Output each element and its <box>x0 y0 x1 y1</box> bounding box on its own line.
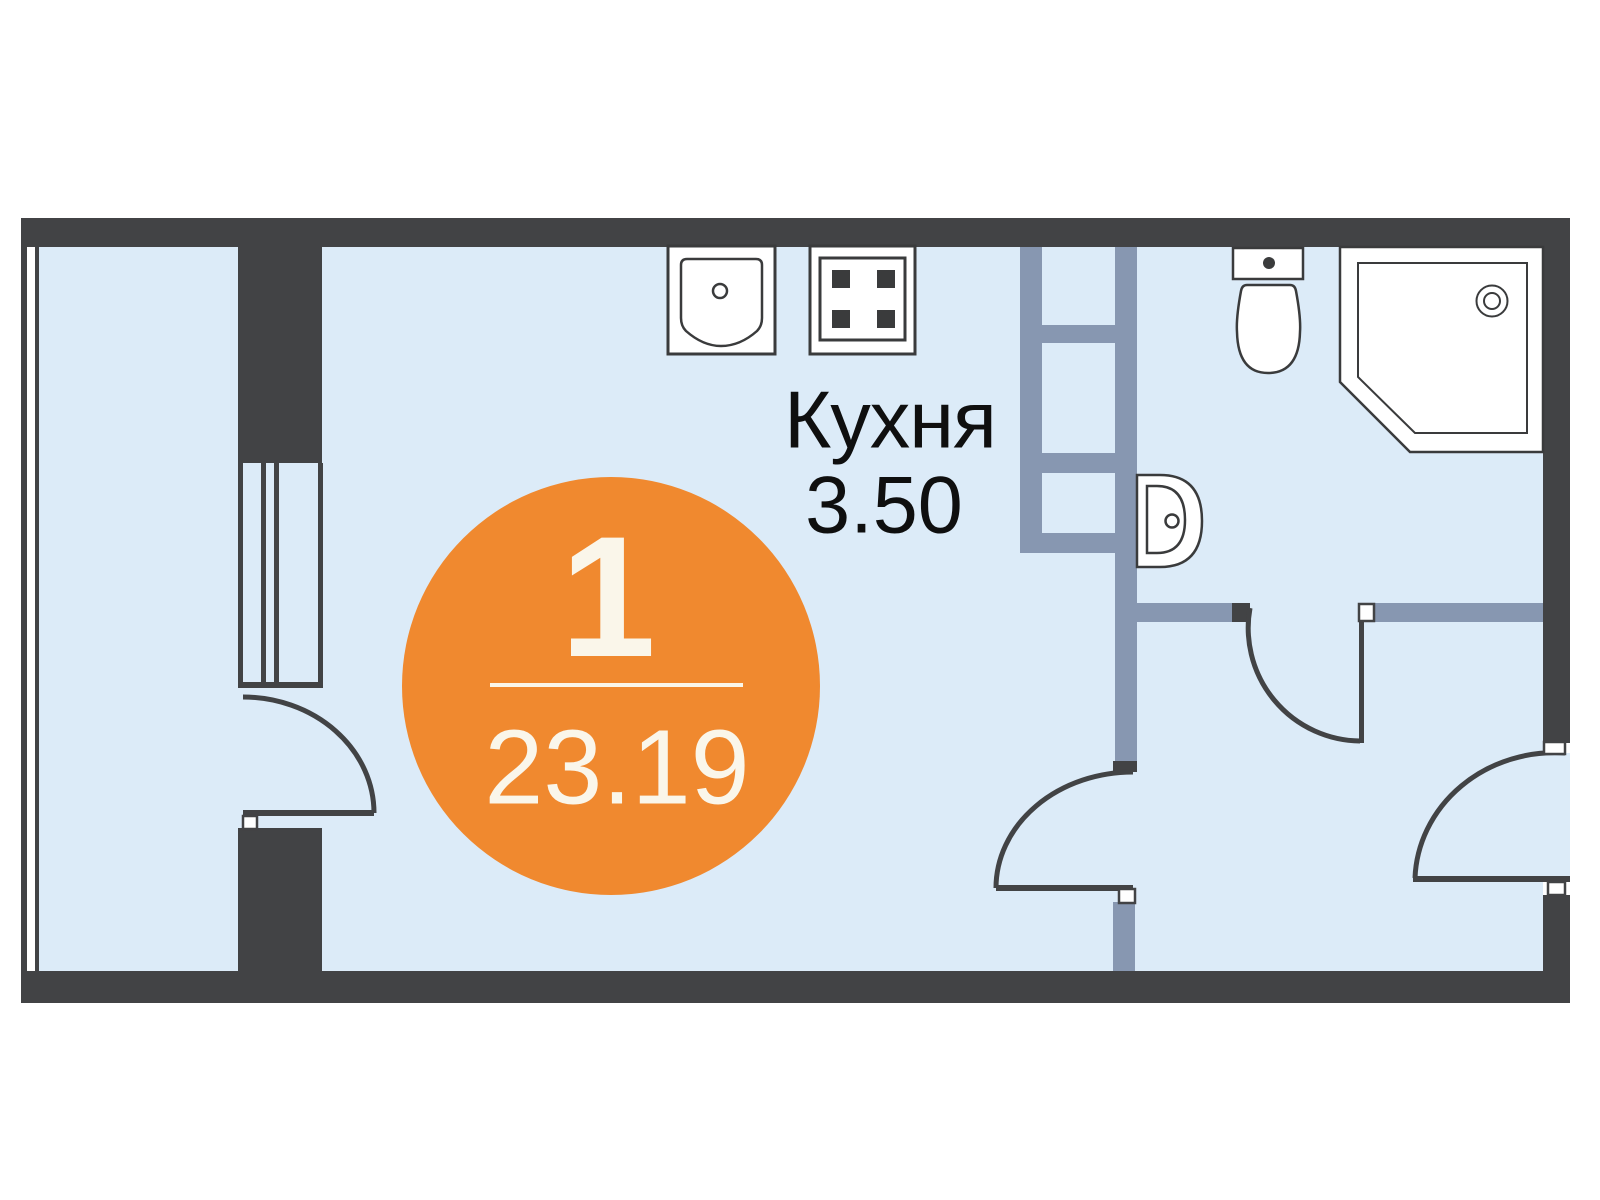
badge-rooms-count: 1 <box>560 498 656 696</box>
badge-total-area: 23.19 <box>484 708 749 829</box>
badge-divider-line <box>490 683 743 687</box>
floor-plan: Кухня 3.50 1 23.19 <box>0 0 1600 1200</box>
kitchen-label: Кухня <box>784 375 996 468</box>
washbasin-icon <box>1137 475 1202 567</box>
floor-plan-drawing <box>0 0 1600 1200</box>
cooktop-icon <box>810 246 915 354</box>
kitchen-area-value: 3.50 <box>805 460 963 553</box>
balcony-window-icon <box>21 247 39 971</box>
toilet-icon <box>1233 248 1303 373</box>
kitchen-sink-icon <box>668 246 775 354</box>
